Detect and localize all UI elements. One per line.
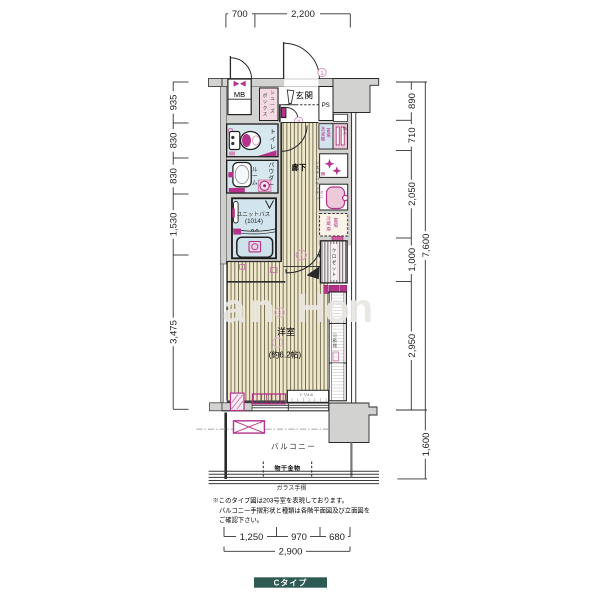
svg-text:庫: 庫 [326, 225, 331, 232]
svg-text:パ: パ [268, 162, 274, 169]
svg-text:an: an [223, 285, 280, 331]
svg-text:玄関: 玄関 [296, 91, 314, 101]
svg-text:2,050: 2,050 [407, 182, 418, 206]
svg-text:ボ: ボ [263, 92, 268, 99]
svg-text:2,900: 2,900 [279, 547, 303, 558]
svg-text:ク: ク [263, 105, 268, 111]
svg-text:710: 710 [407, 127, 418, 143]
svg-text:970: 970 [291, 532, 307, 543]
svg-text:1,600: 1,600 [421, 433, 432, 457]
svg-text:2,200: 2,200 [291, 9, 315, 20]
svg-text:ッ: ッ [263, 100, 268, 105]
svg-text:830: 830 [169, 133, 180, 149]
svg-text:ル: ル [252, 168, 258, 174]
svg-text:Cタイプ: Cタイプ [274, 578, 308, 588]
svg-text:935: 935 [169, 95, 180, 111]
svg-text:洋室: 洋室 [277, 326, 295, 337]
svg-text:棚: 棚 [333, 342, 337, 349]
svg-text:ト: ト [270, 129, 276, 136]
svg-text:ご確認下さい。: ご確認下さい。 [219, 515, 263, 524]
svg-text:ガラス手摺: ガラス手摺 [277, 484, 307, 492]
svg-text:ー: ー [268, 183, 274, 189]
svg-text:ウ: ウ [268, 168, 274, 176]
svg-text:PS: PS [322, 103, 330, 109]
svg-text:ン: ン [315, 196, 319, 201]
svg-text:1,250: 1,250 [240, 532, 264, 543]
svg-text:ム: ム [252, 180, 258, 187]
svg-text:ッ: ッ [332, 266, 336, 271]
svg-text:場: 場 [333, 222, 338, 229]
svg-text:(1014): (1014) [245, 218, 263, 225]
svg-text:シ: シ [270, 91, 275, 96]
svg-text:バルコニー手摺形状と種類は各階平面図及び立面図を: バルコニー手摺形状と種類は各階平面図及び立面図を [219, 505, 370, 514]
svg-text:700: 700 [232, 9, 248, 20]
svg-text:ュ: ュ [270, 97, 275, 102]
svg-text:トリ4.8: トリ4.8 [299, 392, 313, 397]
svg-text:680: 680 [329, 532, 345, 543]
svg-text:レ: レ [270, 144, 276, 151]
svg-text:ズ: ズ [270, 108, 275, 115]
svg-text:※このタイプ図は203号室を表現しております。: ※このタイプ図は203号室を表現しております。 [213, 496, 348, 505]
svg-text:1,530: 1,530 [169, 213, 180, 237]
svg-text:入: 入 [343, 130, 347, 135]
svg-text:ト: ト [332, 272, 336, 277]
svg-text:ー: ー [270, 103, 275, 108]
svg-text:ダ: ダ [268, 174, 274, 182]
svg-text:ス: ス [263, 112, 268, 118]
svg-text:機: 機 [321, 136, 326, 143]
svg-text:ロ: ロ [332, 254, 336, 259]
svg-text:バルコニー: バルコニー [271, 442, 316, 451]
svg-text:(約6.2帖): (約6.2帖) [269, 350, 302, 360]
svg-text:7,600: 7,600 [421, 234, 432, 258]
svg-text:2,950: 2,950 [407, 334, 418, 358]
svg-text:場: 場 [326, 132, 331, 139]
svg-text:廊下: 廊下 [292, 163, 306, 172]
svg-text:Hon: Hon [297, 285, 372, 331]
svg-text:ー: ー [252, 174, 258, 180]
svg-text:MB: MB [234, 90, 245, 99]
svg-text:830: 830 [169, 168, 180, 184]
svg-text:イ: イ [270, 137, 276, 144]
svg-text:ニ: ニ [320, 195, 324, 199]
svg-text:1,000: 1,000 [407, 248, 418, 272]
svg-text:ゼ: ゼ [332, 259, 337, 265]
svg-text:ユニットバス: ユニットバス [237, 211, 271, 218]
svg-text:890: 890 [407, 93, 418, 109]
svg-text:3,475: 3,475 [169, 320, 180, 344]
